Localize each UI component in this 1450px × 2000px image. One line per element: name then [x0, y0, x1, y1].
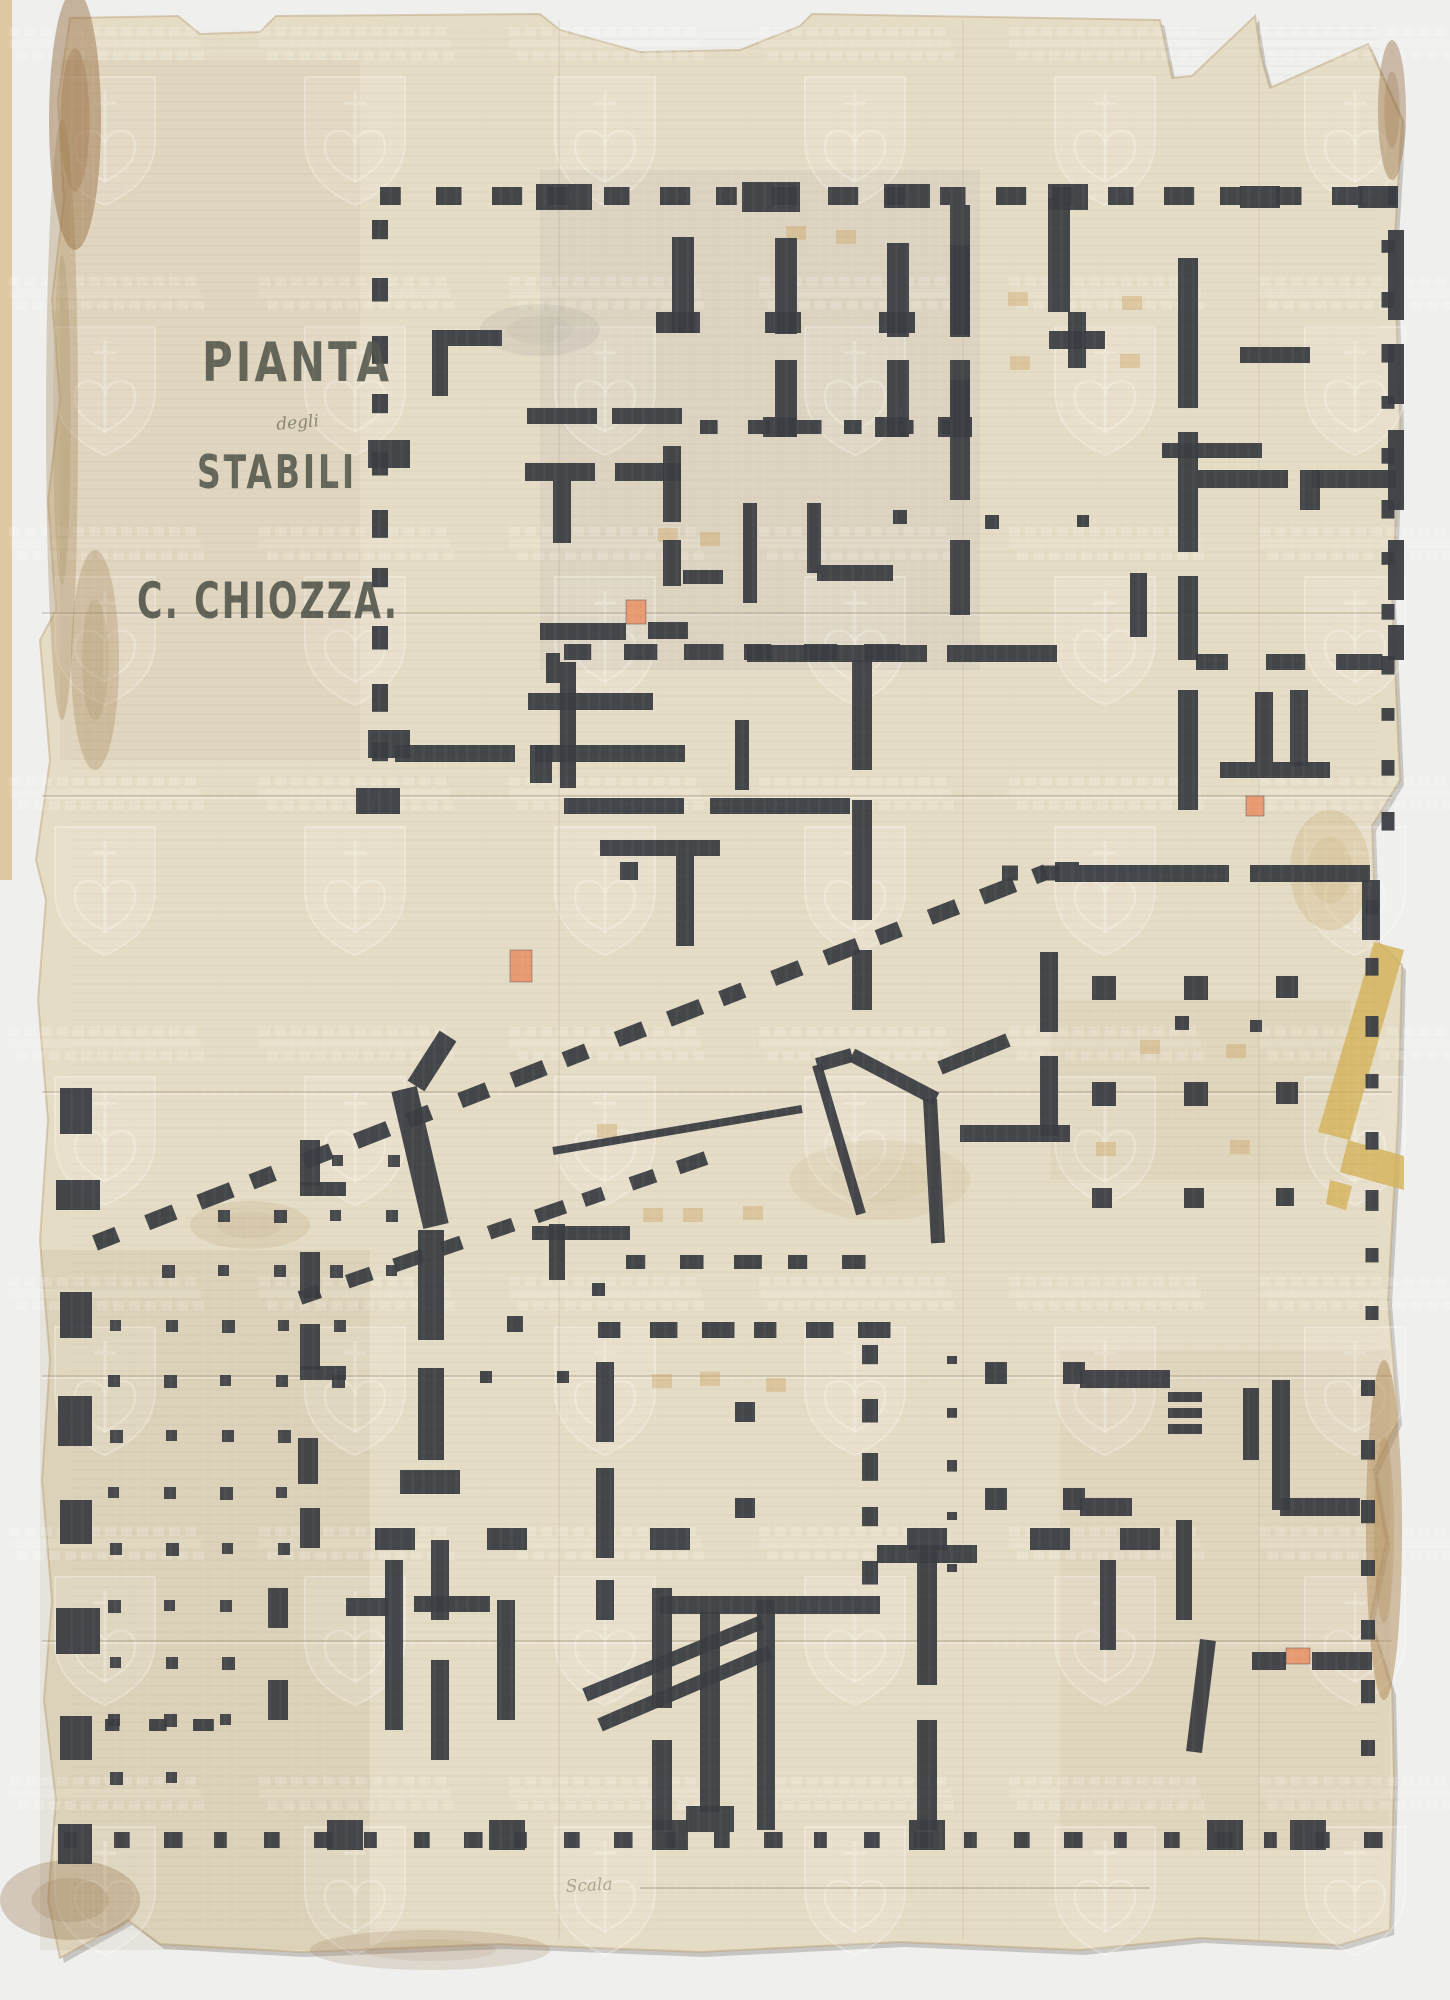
watermark-crenellation: [153, 527, 164, 536]
watermark-crenellation: [1331, 551, 1342, 560]
dashed-wall-segment: [372, 452, 388, 476]
watermark-crenellation: [685, 1277, 696, 1286]
watermark-crenellation: [49, 1801, 60, 1810]
watermark-crenellation: [259, 1027, 270, 1036]
watermark-crenellation: [839, 27, 850, 36]
watermark-crenellation: [299, 301, 310, 310]
dashed-wall-segment: [1014, 1832, 1030, 1848]
watermark-crenellation: [1081, 1051, 1092, 1060]
watermark-crenellation: [1153, 277, 1164, 286]
watermark-crenellation: [1259, 277, 1270, 286]
watermark-crenellation: [1403, 1277, 1414, 1286]
column-dot: [108, 1487, 119, 1498]
watermark-crenellation: [645, 51, 656, 60]
watermark-crenellation: [9, 277, 20, 286]
watermark-crenellation: [435, 1527, 446, 1536]
watermark-crenellation: [291, 27, 302, 36]
watermark-crenellation: [533, 1051, 544, 1060]
watermark-crenellation: [1275, 1277, 1286, 1286]
watermark-crenellation: [871, 527, 882, 536]
watermark-crenellation: [613, 1051, 624, 1060]
watermark-crenellation: [1435, 1277, 1446, 1286]
watermark-crenellation: [339, 27, 350, 36]
watermark-crenellation: [339, 1777, 350, 1786]
watermark-crenellation: [839, 1777, 850, 1786]
watermark-crenellation: [1371, 1277, 1382, 1286]
watermark-crenellation: [1161, 1301, 1172, 1310]
watermark-crenellation: [1323, 1527, 1334, 1536]
dashed-wall-segment: [372, 394, 388, 413]
watermark-crenellation: [97, 1551, 108, 1560]
column-dot: [220, 1600, 232, 1612]
watermark-crenellation: [1089, 27, 1100, 36]
watermark-crenellation: [1419, 527, 1430, 536]
watermark-crenellation: [161, 1051, 172, 1060]
stove-mark: [683, 1208, 703, 1222]
watermark-crenellation: [299, 551, 310, 560]
watermark-crenellation: [1267, 1801, 1278, 1810]
watermark-crenellation: [1267, 301, 1278, 310]
watermark-crenellation: [137, 277, 148, 286]
dashed-wall-segment: [1264, 1832, 1277, 1848]
watermark-crenellation: [1411, 801, 1422, 810]
watermark-crenellation: [605, 1277, 616, 1286]
watermark-crenellation: [597, 1301, 608, 1310]
watermark-crenellation: [419, 1777, 430, 1786]
watermark-crenellation: [9, 527, 20, 536]
watermark-crenellation: [291, 1777, 302, 1786]
watermark-crenellation: [775, 777, 786, 786]
watermark-crenellation: [419, 1027, 430, 1036]
watermark-crenellation: [1145, 1301, 1156, 1310]
watermark-crenellation: [169, 527, 180, 536]
wall-segment: [757, 1600, 775, 1830]
watermark-crenellation: [419, 1527, 430, 1536]
watermark-crenellation: [1355, 1777, 1366, 1786]
watermark-crenellation: [57, 1777, 68, 1786]
watermark-crenellation: [693, 301, 704, 310]
dashed-wall-segment: [940, 187, 965, 205]
watermark-crenellation: [443, 551, 454, 560]
watermark-crenellation: [1267, 551, 1278, 560]
watermark-crenellation: [1065, 1301, 1076, 1310]
watermark-crenellation: [1121, 527, 1132, 536]
watermark-crenellation: [25, 1277, 36, 1286]
watermark-crenellation: [1113, 1801, 1124, 1810]
watermark-crenellation: [581, 51, 592, 60]
wall-segment: [1272, 1380, 1290, 1510]
watermark-crenellation: [1153, 1027, 1164, 1036]
watermark-crenellation: [1121, 1777, 1132, 1786]
watermark-crenellation: [259, 1277, 270, 1286]
watermark-crenellation: [613, 1301, 624, 1310]
adjacent-page-edge: [0, 0, 12, 880]
watermark-crenellation: [177, 551, 188, 560]
watermark-crenellation: [73, 1277, 84, 1286]
watermark-band: [9, 39, 201, 48]
watermark-crenellation: [1049, 801, 1060, 810]
watermark-crenellation: [145, 1551, 156, 1560]
dashed-wall-segment: [1361, 1380, 1375, 1396]
dashed-wall-segment: [862, 1453, 878, 1481]
dashed-wall-segment: [862, 1561, 878, 1585]
watermark-crenellation: [541, 277, 552, 286]
watermark-crenellation: [637, 1527, 648, 1536]
watermark-crenellation: [113, 1051, 124, 1060]
watermark-band: [1009, 1789, 1201, 1798]
wall-segment: [546, 653, 560, 683]
wall-segment: [1130, 573, 1147, 637]
wall-segment: [300, 1324, 320, 1370]
watermark-crenellation: [613, 551, 624, 560]
watermark-crenellation: [9, 1777, 20, 1786]
watermark-crenellation: [435, 27, 446, 36]
watermark-crenellation: [525, 1777, 536, 1786]
wall-segment: [530, 745, 552, 783]
dashed-wall-segment: [940, 420, 966, 434]
watermark-crenellation: [1403, 1027, 1414, 1036]
wall-segment: [1120, 1528, 1160, 1550]
watermark-crenellation: [17, 1301, 28, 1310]
watermark-crenellation: [193, 1801, 204, 1810]
watermark-crenellation: [1403, 277, 1414, 286]
watermark-crenellation: [767, 551, 778, 560]
watermark-crenellation: [17, 301, 28, 310]
dashed-wall-segment: [806, 1322, 833, 1338]
orange-threshold-marker: [510, 950, 532, 982]
watermark-crenellation: [387, 27, 398, 36]
wall-segment: [656, 312, 700, 333]
watermark-crenellation: [847, 1551, 858, 1560]
watermark-crenellation: [791, 777, 802, 786]
dashed-wall-segment: [64, 1832, 77, 1848]
wall-segment: [1080, 1498, 1132, 1516]
watermark-crenellation: [935, 777, 946, 786]
watermark-crenellation: [1347, 551, 1358, 560]
watermark-crenellation: [1073, 27, 1084, 36]
watermark-crenellation: [1299, 1801, 1310, 1810]
watermark-crenellation: [1065, 51, 1076, 60]
watermark-crenellation: [589, 277, 600, 286]
watermark-crenellation: [1411, 1801, 1422, 1810]
watermark-band: [1259, 39, 1450, 48]
watermark-crenellation: [1169, 1777, 1180, 1786]
pillar: [507, 1316, 523, 1332]
watermark-crenellation: [1395, 1051, 1406, 1060]
wall-segment: [743, 503, 757, 603]
watermark-crenellation: [1137, 277, 1148, 286]
wall-segment: [60, 1716, 92, 1760]
watermark-crenellation: [847, 51, 858, 60]
watermark-crenellation: [267, 1801, 278, 1810]
dashed-wall-segment: [564, 1832, 580, 1848]
watermark-crenellation: [1411, 51, 1422, 60]
watermark-crenellation: [895, 1051, 906, 1060]
pillar: [480, 1371, 492, 1383]
watermark-crenellation: [1129, 1051, 1140, 1060]
watermark-crenellation: [1193, 551, 1204, 560]
watermark-crenellation: [533, 801, 544, 810]
watermark-crenellation: [767, 1051, 778, 1060]
watermark-crenellation: [1025, 527, 1036, 536]
watermark-crenellation: [339, 277, 350, 286]
dashed-wall-segment: [716, 187, 737, 205]
dashed-wall-segment: [364, 1832, 377, 1848]
watermark-crenellation: [1113, 1551, 1124, 1560]
dashed-wall-segment: [1382, 812, 1395, 831]
watermark-crenellation: [9, 1027, 20, 1036]
wall-segment: [432, 346, 448, 396]
wall-segment: [268, 1588, 288, 1628]
watermark-crenellation: [669, 1027, 680, 1036]
watermark-crenellation: [927, 551, 938, 560]
watermark-crenellation: [185, 777, 196, 786]
watermark-crenellation: [49, 1551, 60, 1560]
column-dot: [388, 1155, 400, 1167]
dashed-wall-segment: [1361, 1740, 1375, 1756]
watermark-crenellation: [129, 1801, 140, 1810]
watermark-crenellation: [629, 551, 640, 560]
watermark-crenellation: [1435, 1777, 1446, 1786]
watermark-crenellation: [823, 1027, 834, 1036]
watermark-crenellation: [645, 1051, 656, 1060]
watermark-crenellation: [1379, 1051, 1390, 1060]
watermark-crenellation: [1129, 801, 1140, 810]
watermark-crenellation: [629, 301, 640, 310]
watermark-crenellation: [1193, 1051, 1204, 1060]
column-dot: [166, 1430, 177, 1441]
watermark-crenellation: [1113, 51, 1124, 60]
wall-segment: [527, 408, 597, 424]
watermark-crenellation: [525, 1277, 536, 1286]
wall-segment: [1280, 1498, 1360, 1516]
watermark-crenellation: [621, 27, 632, 36]
watermark-crenellation: [1323, 1027, 1334, 1036]
watermark-crenellation: [1291, 277, 1302, 286]
watermark-crenellation: [1129, 1801, 1140, 1810]
watermark-crenellation: [185, 277, 196, 286]
watermark-band: [1009, 1289, 1201, 1298]
watermark-crenellation: [1073, 1027, 1084, 1036]
watermark-crenellation: [1025, 1777, 1036, 1786]
wall-segment: [1312, 1652, 1372, 1670]
watermark-crenellation: [685, 1027, 696, 1036]
watermark-crenellation: [299, 1801, 310, 1810]
watermark-crenellation: [97, 801, 108, 810]
pillar: [1092, 1188, 1112, 1208]
dashed-wall-segment: [492, 187, 522, 205]
watermark-crenellation: [823, 277, 834, 286]
wall-segment: [1388, 430, 1404, 510]
watermark-crenellation: [427, 551, 438, 560]
watermark-crenellation: [1097, 1801, 1108, 1810]
dashed-wall-segment: [764, 1832, 783, 1848]
watermark-crenellation: [637, 1777, 648, 1786]
watermark-crenellation: [645, 551, 656, 560]
watermark-crenellation: [887, 1277, 898, 1286]
watermark-crenellation: [783, 51, 794, 60]
dashed-wall-segment: [1052, 187, 1073, 205]
dashed-wall-segment: [864, 1832, 880, 1848]
watermark-crenellation: [823, 1777, 834, 1786]
watermark-crenellation: [25, 27, 36, 36]
watermark-crenellation: [339, 777, 350, 786]
watermark-crenellation: [161, 551, 172, 560]
watermark-crenellation: [153, 1527, 164, 1536]
watermark-crenellation: [1073, 1277, 1084, 1286]
watermark-crenellation: [177, 801, 188, 810]
watermark-crenellation: [1177, 551, 1188, 560]
watermark-crenellation: [331, 51, 342, 60]
watermark-crenellation: [161, 1301, 172, 1310]
wall-segment: [1243, 1388, 1259, 1460]
watermark-crenellation: [903, 27, 914, 36]
watermark-crenellation: [1121, 777, 1132, 786]
watermark-crenellation: [1443, 551, 1450, 560]
watermark-crenellation: [1395, 801, 1406, 810]
floor-plan-scan-canvas: PIANTA degli STABILI C. CHIOZZA. Scala: [0, 0, 1450, 2000]
watermark-crenellation: [1137, 1777, 1148, 1786]
watermark-crenellation: [1193, 1301, 1204, 1310]
dashed-wall-segment: [947, 1512, 957, 1520]
stove-mark: [1230, 1140, 1250, 1154]
watermark-crenellation: [193, 1051, 204, 1060]
watermark-crenellation: [299, 1051, 310, 1060]
watermark-band: [259, 39, 451, 48]
watermark-crenellation: [1097, 1551, 1108, 1560]
dashed-wall-segment: [1361, 1560, 1375, 1576]
watermark-crenellation: [1315, 801, 1326, 810]
watermark-crenellation: [1267, 801, 1278, 810]
watermark-crenellation: [645, 1301, 656, 1310]
watermark-crenellation: [759, 1027, 770, 1036]
watermark-crenellation: [1081, 1551, 1092, 1560]
column-dot: [386, 1210, 398, 1222]
watermark-crenellation: [1283, 1301, 1294, 1310]
watermark-crenellation: [387, 1777, 398, 1786]
watermark-crenellation: [307, 777, 318, 786]
watermark-crenellation: [419, 777, 430, 786]
watermark-crenellation: [1443, 51, 1450, 60]
dashed-wall-segment: [947, 1356, 957, 1364]
watermark-crenellation: [1153, 527, 1164, 536]
watermark-crenellation: [1105, 27, 1116, 36]
dashed-wall-segment: [414, 1832, 430, 1848]
watermark-crenellation: [1283, 551, 1294, 560]
wall-segment: [1100, 1560, 1116, 1650]
watermark-crenellation: [41, 1777, 52, 1786]
dashed-wall-segment: [1382, 344, 1395, 363]
wall-segment: [56, 1180, 100, 1210]
dashed-wall-segment: [1361, 1440, 1375, 1460]
watermark-crenellation: [621, 527, 632, 536]
watermark-crenellation: [879, 801, 890, 810]
watermark-crenellation: [1105, 277, 1116, 286]
watermark-crenellation: [831, 1801, 842, 1810]
watermark-crenellation: [57, 1277, 68, 1286]
watermark-crenellation: [97, 1301, 108, 1310]
column-dot: [110, 1772, 123, 1785]
column-dot: [330, 1265, 343, 1278]
watermark-crenellation: [693, 551, 704, 560]
dashed-wall-segment: [1064, 1832, 1083, 1848]
wall-segment: [385, 1560, 403, 1730]
stove-mark: [1122, 296, 1142, 310]
watermark-crenellation: [791, 1277, 802, 1286]
watermark-crenellation: [1057, 1027, 1068, 1036]
watermark-crenellation: [347, 1301, 358, 1310]
watermark-crenellation: [637, 277, 648, 286]
watermark-crenellation: [661, 51, 672, 60]
watermark-crenellation: [1355, 1277, 1366, 1286]
wall-segment: [300, 1508, 320, 1548]
watermark-crenellation: [863, 1301, 874, 1310]
dashed-wall-segment: [264, 1832, 280, 1848]
watermark-crenellation: [1009, 27, 1020, 36]
watermark-crenellation: [403, 1027, 414, 1036]
watermark-crenellation: [1025, 1027, 1036, 1036]
watermark-crenellation: [193, 551, 204, 560]
watermark-crenellation: [1009, 1277, 1020, 1286]
wall-segment: [1176, 1520, 1192, 1620]
watermark-crenellation: [275, 777, 286, 786]
dashed-wall-segment: [862, 1399, 878, 1423]
watermark-crenellation: [33, 1051, 44, 1060]
column-dot: [218, 1265, 229, 1276]
stove-mark: [658, 528, 678, 542]
watermark-band: [259, 289, 451, 298]
watermark-crenellation: [565, 551, 576, 560]
watermark-crenellation: [1259, 1777, 1270, 1786]
watermark-crenellation: [1419, 1777, 1430, 1786]
watermark-crenellation: [1427, 51, 1438, 60]
watermark-crenellation: [1161, 801, 1172, 810]
column-dot: [332, 1155, 343, 1166]
watermark-crenellation: [887, 777, 898, 786]
watermark-crenellation: [411, 1051, 422, 1060]
watermark-crenellation: [871, 1027, 882, 1036]
watermark-crenellation: [589, 27, 600, 36]
watermark-crenellation: [339, 1027, 350, 1036]
wall-segment: [879, 312, 915, 333]
wall-segment: [676, 856, 694, 946]
watermark-crenellation: [911, 301, 922, 310]
watermark-crenellation: [1291, 777, 1302, 786]
watermark-crenellation: [1299, 1551, 1310, 1560]
watermark-crenellation: [1259, 1277, 1270, 1286]
watermark-crenellation: [1347, 801, 1358, 810]
watermark-crenellation: [1419, 277, 1430, 286]
column-dot: [164, 1600, 175, 1611]
watermark-crenellation: [807, 1027, 818, 1036]
watermark-band: [9, 1039, 201, 1048]
watermark-crenellation: [533, 51, 544, 60]
watermark-crenellation: [1033, 551, 1044, 560]
watermark-crenellation: [1121, 277, 1132, 286]
watermark-crenellation: [1145, 801, 1156, 810]
wall-segment: [535, 745, 685, 762]
watermark-crenellation: [1009, 1777, 1020, 1786]
watermark-crenellation: [807, 1527, 818, 1536]
watermark-crenellation: [629, 51, 640, 60]
watermark-crenellation: [823, 27, 834, 36]
watermark-crenellation: [1049, 1801, 1060, 1810]
watermark-crenellation: [1073, 277, 1084, 286]
watermark-crenellation: [605, 27, 616, 36]
watermark-crenellation: [1041, 1777, 1052, 1786]
watermark-crenellation: [677, 1301, 688, 1310]
dashed-wall-segment: [796, 420, 822, 434]
